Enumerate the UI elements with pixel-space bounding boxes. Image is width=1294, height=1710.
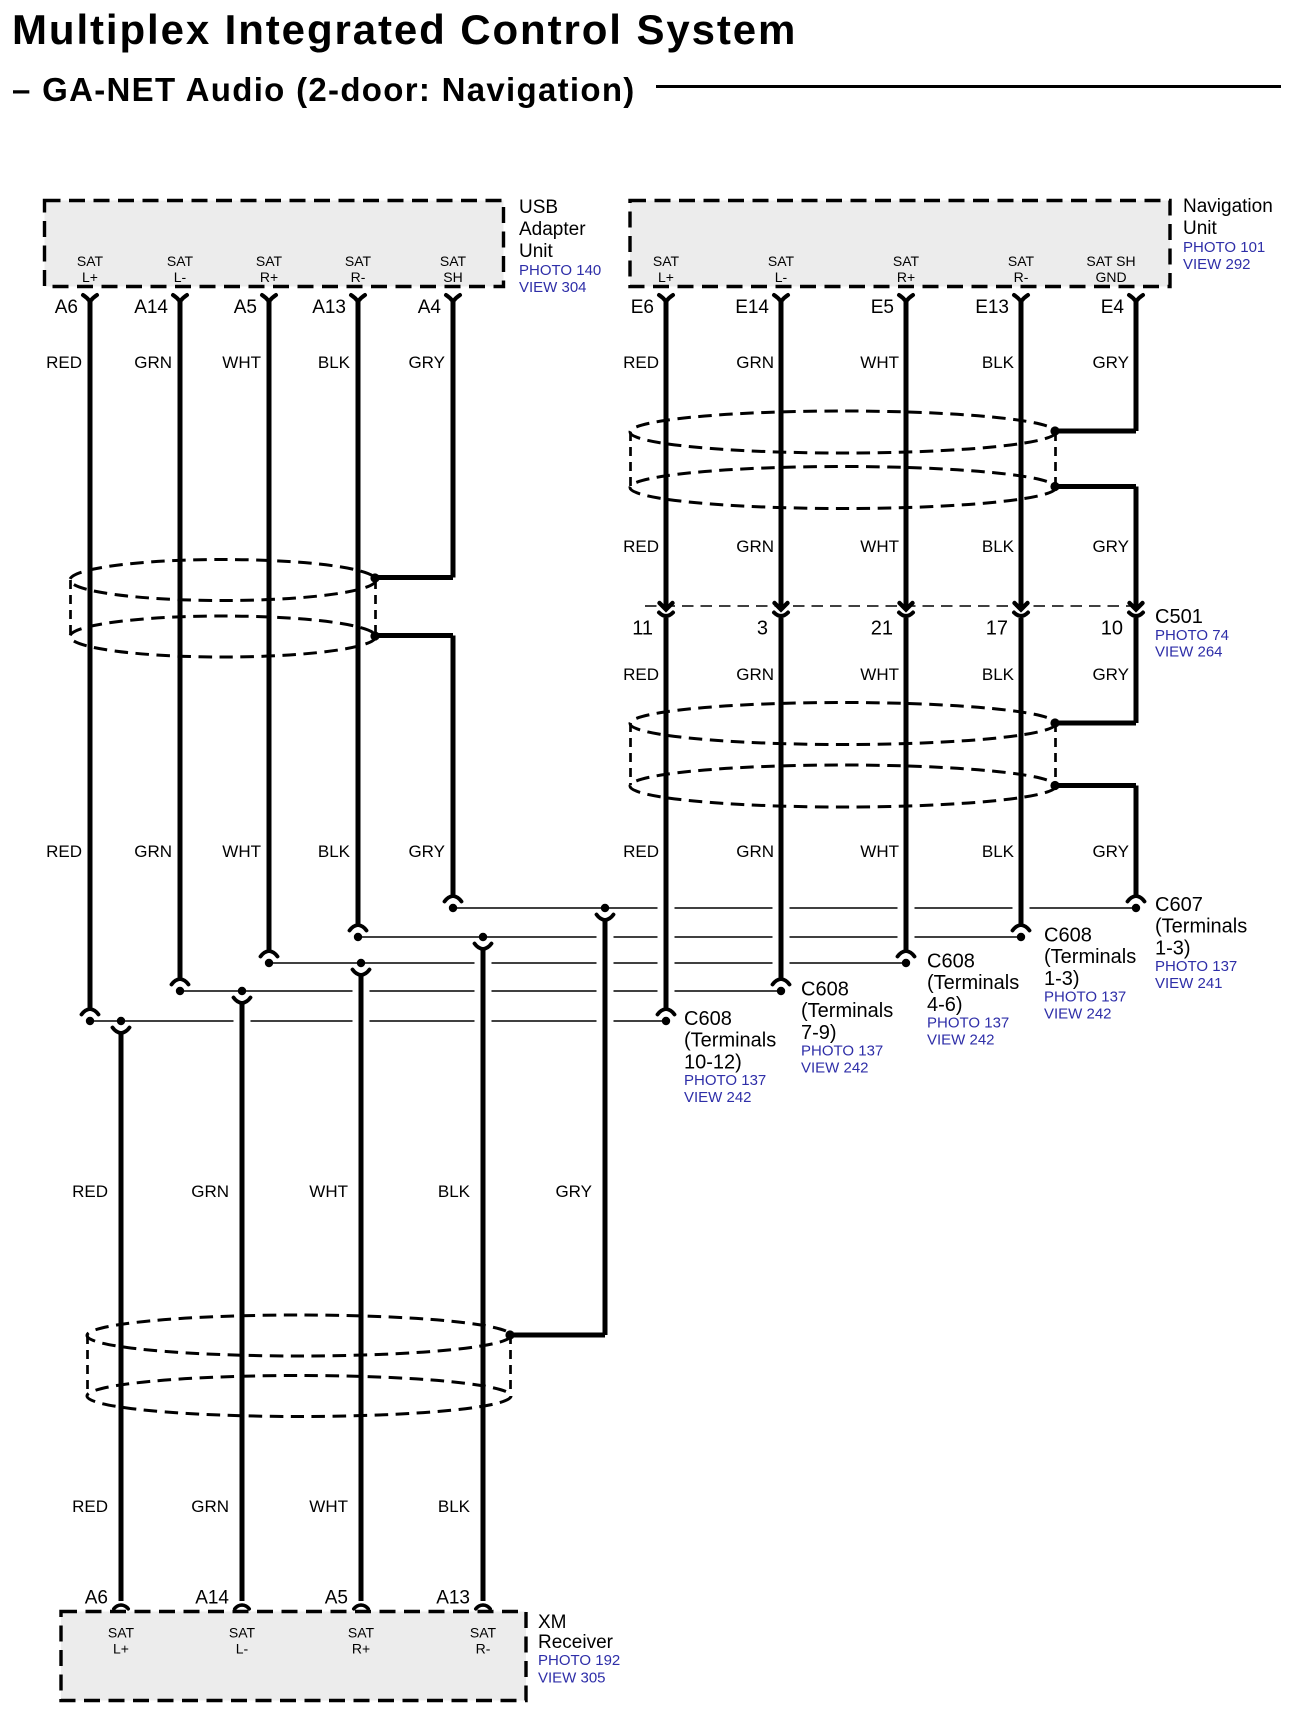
svg-text:SAT: SAT (348, 1625, 375, 1641)
svg-text:RED: RED (623, 665, 659, 684)
svg-text:A6: A6 (55, 297, 78, 318)
svg-text:Unit: Unit (1183, 218, 1218, 239)
svg-text:GRY: GRY (408, 353, 445, 372)
svg-text:PHOTO 137: PHOTO 137 (684, 1072, 766, 1089)
svg-text:PHOTO 74: PHOTO 74 (1155, 627, 1229, 644)
svg-text:GRN: GRN (191, 1497, 229, 1516)
svg-text:RED: RED (46, 353, 82, 372)
svg-text:BLK: BLK (982, 665, 1015, 684)
svg-text:A14: A14 (134, 297, 168, 318)
svg-text:R-: R- (1014, 269, 1029, 285)
svg-text:USB: USB (519, 197, 558, 218)
svg-text:SAT: SAT (653, 253, 680, 269)
svg-text:E14: E14 (735, 297, 769, 318)
svg-text:Receiver: Receiver (538, 1632, 614, 1653)
svg-text:11: 11 (632, 618, 653, 640)
svg-text:C608: C608 (1044, 925, 1092, 947)
svg-text:L+: L+ (113, 1641, 129, 1657)
svg-text:SH: SH (443, 269, 462, 285)
svg-text:L-: L- (775, 269, 788, 285)
svg-text:3: 3 (757, 618, 768, 640)
svg-text:C608: C608 (801, 979, 849, 1001)
svg-text:RED: RED (623, 537, 659, 556)
svg-text:GRN: GRN (736, 537, 774, 556)
svg-text:GRN: GRN (134, 353, 172, 372)
svg-text:C608: C608 (927, 951, 975, 973)
svg-text:XM: XM (538, 1612, 567, 1633)
svg-text:R-: R- (351, 269, 366, 285)
svg-text:PHOTO 140: PHOTO 140 (519, 262, 601, 279)
svg-text:SAT: SAT (229, 1625, 256, 1641)
svg-text:10-12): 10-12) (684, 1052, 742, 1074)
svg-text:GRY: GRY (1092, 665, 1129, 684)
svg-text:21: 21 (871, 618, 893, 640)
svg-text:(Terminals: (Terminals (927, 972, 1019, 994)
svg-text:SAT: SAT (440, 253, 467, 269)
svg-text:BLK: BLK (318, 353, 351, 372)
svg-text:BLK: BLK (438, 1497, 471, 1516)
svg-text:GRY: GRY (1092, 537, 1129, 556)
svg-text:A14: A14 (195, 1588, 229, 1609)
svg-text:VIEW 304: VIEW 304 (519, 279, 587, 296)
svg-text:VIEW 242: VIEW 242 (927, 1032, 995, 1049)
svg-text:GRY: GRY (408, 842, 445, 861)
svg-text:WHT: WHT (860, 665, 899, 684)
svg-text:GRN: GRN (736, 665, 774, 684)
svg-text:SAT: SAT (167, 253, 194, 269)
svg-text:WHT: WHT (222, 353, 261, 372)
svg-text:Adapter: Adapter (519, 219, 586, 240)
svg-text:BLK: BLK (318, 842, 351, 861)
svg-text:SAT: SAT (768, 253, 795, 269)
svg-text:VIEW 241: VIEW 241 (1155, 975, 1223, 992)
svg-text:GRN: GRN (191, 1182, 229, 1201)
svg-text:E5: E5 (871, 297, 894, 318)
svg-text:RED: RED (623, 353, 659, 372)
svg-text:SAT: SAT (1008, 253, 1035, 269)
svg-text:– GA-NET Audio (2-door: Naviga: – GA-NET Audio (2-door: Navigation) (12, 71, 636, 108)
svg-text:GRY: GRY (555, 1182, 592, 1201)
svg-text:R+: R+ (352, 1641, 370, 1657)
svg-text:SAT: SAT (77, 253, 104, 269)
svg-text:PHOTO 137: PHOTO 137 (801, 1043, 883, 1060)
svg-text:(Terminals: (Terminals (1044, 946, 1136, 968)
svg-text:VIEW 292: VIEW 292 (1183, 256, 1251, 273)
svg-text:SAT: SAT (893, 253, 920, 269)
svg-text:C607: C607 (1155, 894, 1203, 916)
svg-text:PHOTO 101: PHOTO 101 (1183, 239, 1265, 256)
svg-text:Multiplex Integrated Control S: Multiplex Integrated Control System (12, 6, 797, 53)
svg-text:A13: A13 (312, 297, 346, 318)
svg-text:(Terminals: (Terminals (684, 1030, 776, 1052)
svg-text:GND: GND (1095, 269, 1126, 285)
svg-text:WHT: WHT (860, 842, 899, 861)
svg-text:(Terminals: (Terminals (801, 1000, 893, 1022)
svg-text:PHOTO 137: PHOTO 137 (1044, 989, 1126, 1006)
svg-text:WHT: WHT (860, 353, 899, 372)
svg-text:VIEW 242: VIEW 242 (801, 1060, 869, 1077)
svg-text:VIEW 305: VIEW 305 (538, 1670, 606, 1687)
svg-text:L-: L- (174, 269, 187, 285)
svg-text:VIEW 264: VIEW 264 (1155, 644, 1223, 661)
svg-text:4-6): 4-6) (927, 994, 963, 1016)
svg-text:A13: A13 (436, 1588, 470, 1609)
svg-text:10: 10 (1101, 618, 1123, 640)
svg-text:A5: A5 (234, 297, 257, 318)
svg-text:SAT: SAT (108, 1625, 135, 1641)
svg-text:L-: L- (236, 1641, 249, 1657)
svg-text:PHOTO 137: PHOTO 137 (1155, 958, 1237, 975)
svg-text:E6: E6 (631, 297, 654, 318)
svg-text:BLK: BLK (438, 1182, 471, 1201)
svg-text:BLK: BLK (982, 842, 1015, 861)
svg-text:E4: E4 (1101, 297, 1125, 318)
svg-text:BLK: BLK (982, 537, 1015, 556)
svg-text:SAT SH: SAT SH (1086, 253, 1135, 269)
svg-text:RED: RED (72, 1497, 108, 1516)
svg-text:Unit: Unit (519, 241, 554, 262)
svg-text:R-: R- (476, 1641, 491, 1657)
svg-text:RED: RED (623, 842, 659, 861)
svg-text:RED: RED (72, 1182, 108, 1201)
svg-text:RED: RED (46, 842, 82, 861)
svg-text:BLK: BLK (982, 353, 1015, 372)
svg-text:C501: C501 (1155, 606, 1203, 628)
svg-text:PHOTO 192: PHOTO 192 (538, 1652, 620, 1669)
svg-text:1-3): 1-3) (1155, 938, 1191, 960)
svg-text:R+: R+ (897, 269, 915, 285)
svg-text:R+: R+ (260, 269, 278, 285)
svg-text:A6: A6 (85, 1588, 108, 1609)
svg-text:C608: C608 (684, 1008, 732, 1030)
svg-text:L+: L+ (658, 269, 674, 285)
svg-text:GRY: GRY (1092, 842, 1129, 861)
svg-text:SAT: SAT (345, 253, 372, 269)
svg-text:A4: A4 (418, 297, 442, 318)
svg-text:GRN: GRN (736, 842, 774, 861)
svg-text:17: 17 (986, 618, 1008, 640)
svg-text:WHT: WHT (309, 1182, 348, 1201)
svg-text:VIEW 242: VIEW 242 (684, 1089, 752, 1106)
svg-text:1-3): 1-3) (1044, 968, 1080, 990)
svg-text:E13: E13 (975, 297, 1009, 318)
svg-text:GRN: GRN (736, 353, 774, 372)
svg-text:GRY: GRY (1092, 353, 1129, 372)
svg-text:WHT: WHT (309, 1497, 348, 1516)
svg-text:VIEW 242: VIEW 242 (1044, 1006, 1112, 1023)
svg-text:WHT: WHT (860, 537, 899, 556)
svg-text:Navigation: Navigation (1183, 196, 1273, 217)
svg-text:L+: L+ (82, 269, 98, 285)
svg-text:7-9): 7-9) (801, 1022, 837, 1044)
svg-text:WHT: WHT (222, 842, 261, 861)
svg-text:GRN: GRN (134, 842, 172, 861)
svg-text:SAT: SAT (256, 253, 283, 269)
svg-text:SAT: SAT (470, 1625, 497, 1641)
svg-text:(Terminals: (Terminals (1155, 916, 1247, 938)
svg-text:A5: A5 (325, 1588, 348, 1609)
svg-text:PHOTO 137: PHOTO 137 (927, 1015, 1009, 1032)
